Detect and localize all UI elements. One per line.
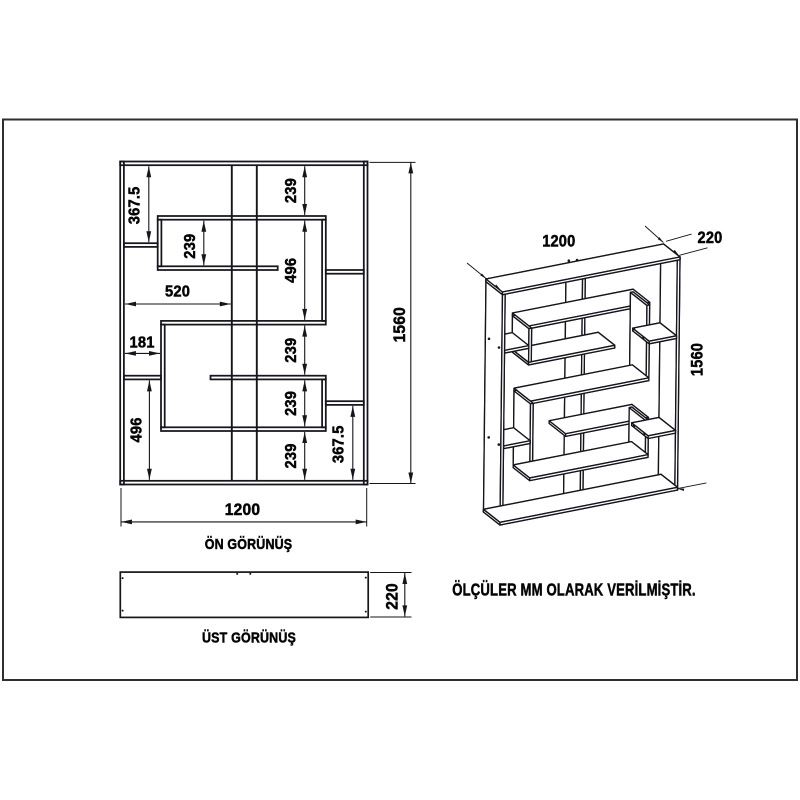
svg-text:1200: 1200 — [225, 501, 261, 520]
svg-text:1560: 1560 — [688, 343, 706, 376]
svg-text:220: 220 — [698, 229, 723, 247]
svg-text:367.5: 367.5 — [126, 186, 144, 224]
svg-text:ÖLÇÜLER MM OLARAK VERİLMİŞTİR.: ÖLÇÜLER MM OLARAK VERİLMİŞTİR. — [452, 581, 695, 600]
svg-text:239: 239 — [283, 443, 301, 468]
svg-text:239: 239 — [283, 338, 301, 363]
svg-text:239: 239 — [181, 234, 199, 259]
svg-text:220: 220 — [383, 583, 402, 610]
svg-text:239: 239 — [283, 178, 301, 203]
svg-text:239: 239 — [283, 391, 301, 416]
svg-text:367.5: 367.5 — [330, 425, 348, 463]
svg-text:520: 520 — [165, 283, 190, 301]
svg-text:1560: 1560 — [390, 307, 409, 343]
svg-text:181: 181 — [129, 334, 154, 352]
svg-text:1200: 1200 — [542, 233, 575, 251]
svg-text:496: 496 — [128, 417, 146, 442]
svg-text:496: 496 — [283, 258, 301, 283]
svg-text:ÜST GÖRÜNÜŞ: ÜST GÖRÜNÜŞ — [202, 630, 296, 646]
svg-text:ÖN GÖRÜNÜŞ: ÖN GÖRÜNÜŞ — [205, 536, 293, 552]
